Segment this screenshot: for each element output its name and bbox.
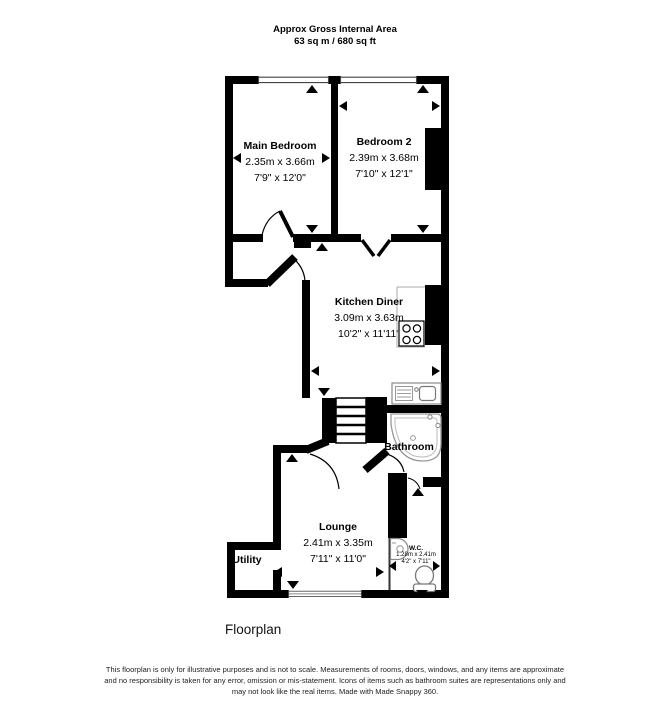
room-label-utility: Utility [232, 554, 261, 566]
title-line2: 63 sq m / 680 sq ft [273, 36, 397, 48]
room-label-wc: W.C. 1.28m x 2.41m 4'2" x 7'11" [396, 545, 436, 565]
room-name: Lounge [303, 519, 372, 535]
stairs-icon [336, 398, 366, 443]
chimney-bedroom2 [425, 128, 441, 190]
door-bedroom2-double [362, 240, 390, 256]
floorplan-caption: Floorplan [225, 622, 281, 637]
door-arc-lounge [310, 454, 339, 489]
arrow-up-icon [316, 243, 328, 251]
room-name: Kitchen Diner [334, 294, 403, 310]
floorplan-page: Approx Gross Internal Area 63 sq m / 680… [0, 0, 670, 711]
door-main-bedroom [262, 211, 293, 237]
arrow-right-icon [432, 101, 440, 111]
window-lounge [288, 590, 362, 598]
arrow-right-icon [376, 567, 384, 577]
toilet-icon [414, 566, 436, 592]
arrow-right-icon [432, 366, 440, 376]
room-name: W.C. [396, 545, 436, 552]
room-name: Main Bedroom [244, 138, 317, 154]
corner-bath-icon [391, 414, 441, 461]
room-label-bathroom: Bathroom [384, 441, 434, 453]
arrow-up-icon [417, 85, 429, 93]
room-label-bedroom2: Bedroom 2 2.39m x 3.68m 7'10" x 12'1" [349, 134, 418, 182]
room-dim-imperial: 4'2" x 7'11" [396, 559, 436, 566]
door-arc-wc [408, 478, 420, 489]
room-dim-imperial: 7'11" x 11'0" [303, 551, 372, 567]
room-dim-imperial: 7'10" x 12'1" [349, 166, 418, 182]
room-dim-metric: 1.28m x 2.41m [396, 552, 436, 559]
room-dim-imperial: 7'9" x 12'0" [244, 170, 317, 186]
room-dim-metric: 2.35m x 3.66m [244, 154, 317, 170]
arrow-up-icon [412, 488, 424, 496]
room-name: Utility [232, 554, 261, 566]
chimney-kitchen [425, 285, 441, 345]
room-label-main-bedroom: Main Bedroom 2.35m x 3.66m 7'9" x 12'0" [244, 138, 317, 186]
room-dim-imperial: 10'2" x 11'11" [334, 326, 403, 342]
room-name: Bedroom 2 [349, 134, 418, 150]
door-arc-entry [294, 259, 305, 281]
room-dim-metric: 2.39m x 3.68m [349, 150, 418, 166]
room-label-kitchen: Kitchen Diner 3.09m x 3.63m 10'2" x 11'1… [334, 294, 403, 342]
room-dim-metric: 2.41m x 3.35m [303, 535, 372, 551]
arrow-left-icon [233, 153, 241, 163]
arrow-down-icon [417, 225, 429, 233]
room-dim-metric: 3.09m x 3.63m [334, 310, 403, 326]
floorplan-drawing [0, 0, 670, 711]
room-label-lounge: Lounge 2.41m x 3.35m 7'11" x 11'0" [303, 519, 372, 567]
window-bedroom2 [340, 76, 417, 84]
window-main-bedroom [258, 76, 329, 84]
room-name: Bathroom [384, 441, 434, 453]
arrow-down-icon [318, 388, 330, 396]
arrow-up-icon [306, 85, 318, 93]
arrow-left-icon [311, 366, 319, 376]
arrow-down-icon [287, 581, 299, 589]
plan-title: Approx Gross Internal Area 63 sq m / 680… [273, 24, 397, 47]
disclaimer-line1: This floorplan is only for illustrative … [106, 664, 564, 675]
kitchen-sink-icon [392, 383, 441, 404]
arrow-up-icon [286, 454, 298, 462]
disclaimer-line2: and no responsibility is taken for any e… [104, 675, 565, 686]
title-line1: Approx Gross Internal Area [273, 24, 397, 36]
arrow-down-icon [306, 225, 318, 233]
arrow-left-icon [339, 101, 347, 111]
disclaimer-line3: may not look like the real items. Made w… [232, 686, 438, 697]
arrow-right-icon [322, 153, 330, 163]
